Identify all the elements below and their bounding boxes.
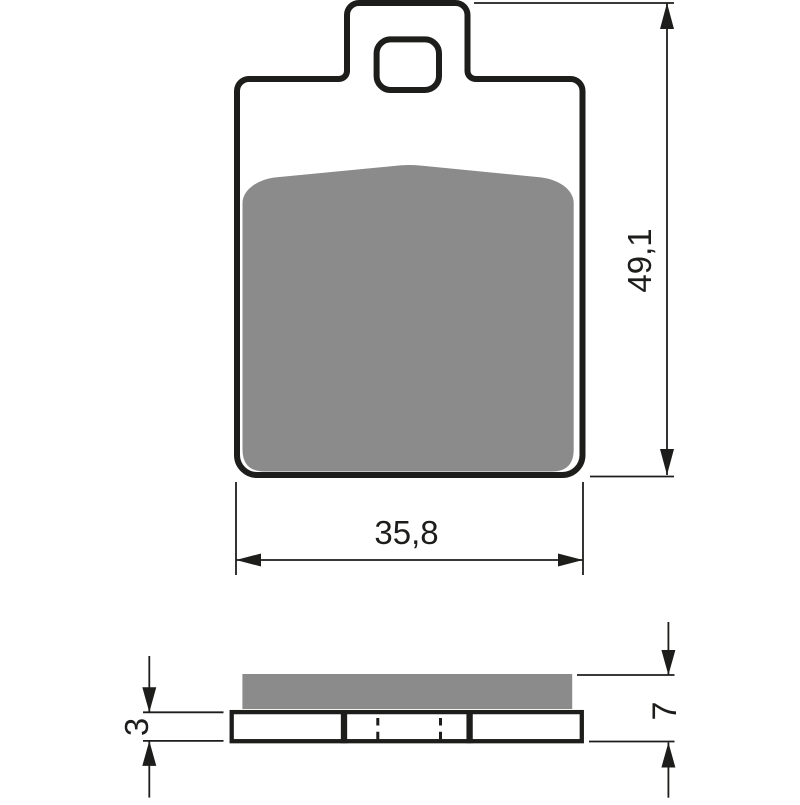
svg-text:7: 7 — [646, 702, 684, 721]
svg-text:3: 3 — [118, 718, 155, 736]
svg-text:35,8: 35,8 — [374, 514, 438, 551]
svg-text:49,1: 49,1 — [621, 228, 658, 292]
